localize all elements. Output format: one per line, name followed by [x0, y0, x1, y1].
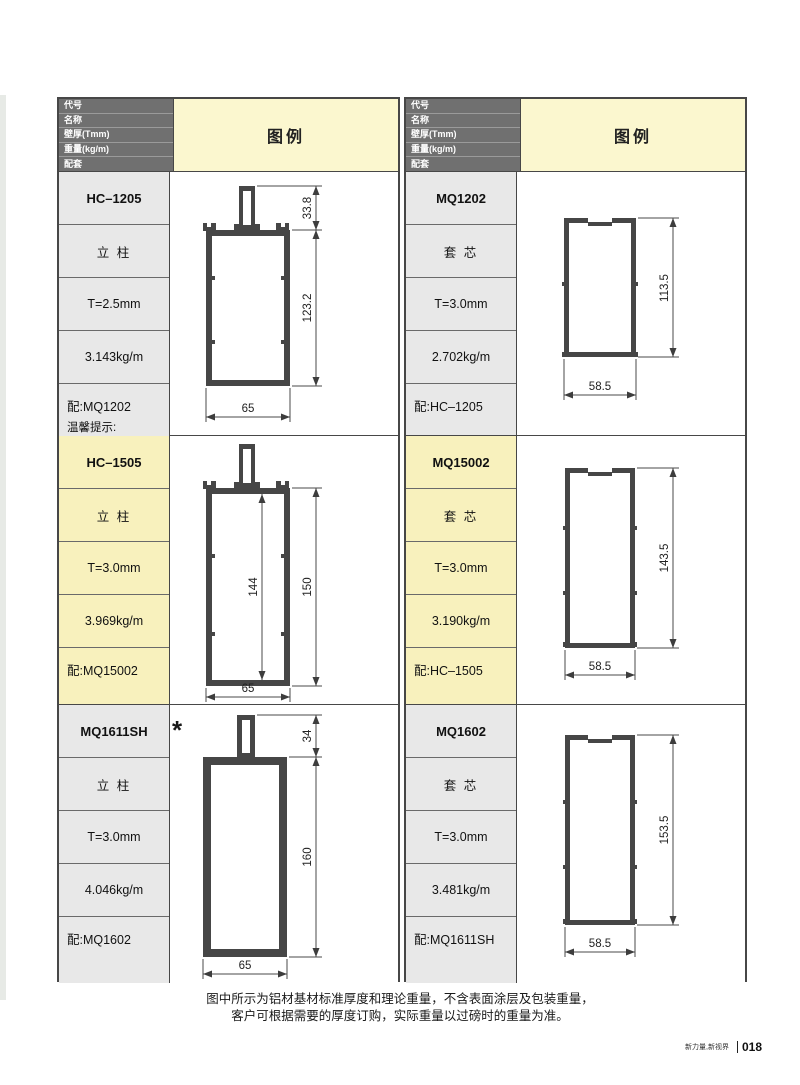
dim-label: 143.5 — [659, 544, 671, 573]
header-field-weight: 重量(kg/m) — [59, 143, 173, 158]
table-row: MQ15002 套 芯 T=3.0mm 3.190kg/m 配:HC–1505 — [406, 436, 745, 705]
footer-note: 图中所示为铝材基材标准厚度和理论重量，不含表面涂层及包装重量， 客户可根据需要的… — [0, 991, 800, 1025]
profile-code: MQ1202 — [406, 172, 516, 225]
profile-weight: 3.190kg/m — [406, 595, 516, 648]
page-footer: 新力量,新视界 018 — [685, 1040, 762, 1054]
profile-drawing-mq1611sh: 34 160 65 — [170, 705, 398, 983]
footer-note-line1: 图中所示为铝材基材标准厚度和理论重量，不含表面涂层及包装重量， — [0, 991, 800, 1008]
dim-label: 34 — [302, 729, 314, 742]
match-code: 配:MQ1602 — [67, 929, 131, 948]
header-field-weight: 重量(kg/m) — [406, 143, 520, 158]
profile-code: HC–1505 — [59, 436, 169, 489]
profile-match: 配:MQ1611SH — [406, 917, 516, 983]
dim-label: 65 — [239, 960, 252, 972]
dim-label: 58.5 — [589, 381, 611, 393]
profile-thickness: T=3.0mm — [406, 278, 516, 331]
tip-line: 温馨提示: — [67, 421, 116, 437]
profile-code: MQ15002 — [406, 436, 516, 489]
header-field-name: 名称 — [406, 114, 520, 129]
table-header: 代号 名称 壁厚(Tmm) 重量(kg/m) 配套 图例 — [406, 99, 745, 172]
dim-label: 144 — [248, 577, 260, 597]
label-column: HC–1505 立 柱 T=3.0mm 3.969kg/m 配:MQ15002 — [59, 436, 169, 704]
profile-code: MQ1611SH — [59, 705, 169, 758]
dim-label: 150 — [302, 577, 314, 596]
match-code: 配:MQ15002 — [67, 660, 138, 679]
footer-divider — [737, 1041, 738, 1053]
scan-edge-artifact — [0, 95, 6, 1000]
label-column: MQ1602 套 芯 T=3.0mm 3.481kg/m 配:MQ1611SH — [406, 705, 516, 983]
profile-drawing-hc1205: 33.8 123.2 65 — [170, 172, 398, 436]
profile-drawing-hc1505: 144 150 65 — [170, 436, 398, 705]
figure-cell: 113.5 58.5 — [516, 172, 745, 435]
header-field-labels: 代号 名称 壁厚(Tmm) 重量(kg/m) 配套 — [406, 99, 520, 171]
profile-weight: 3.969kg/m — [59, 595, 169, 648]
asterisk-mark: * — [172, 715, 182, 746]
match-code: 配:HC–1505 — [414, 660, 483, 679]
profile-code: HC–1205 — [59, 172, 169, 225]
profile-name: 立 柱 — [59, 758, 169, 811]
dim-label: 153.5 — [659, 816, 671, 845]
profile-match: 配:HC–1505 — [406, 648, 516, 704]
profile-weight: 4.046kg/m — [59, 864, 169, 917]
page-number: 018 — [742, 1040, 762, 1054]
figure-cell: 144 150 65 — [169, 436, 398, 704]
match-code: 配:HC–1205 — [414, 396, 483, 415]
profile-name: 立 柱 — [59, 225, 169, 278]
figure-cell: * 34 160 65 — [169, 705, 398, 983]
dim-label: 33.8 — [302, 197, 314, 219]
profile-thickness: T=3.0mm — [406, 542, 516, 595]
profile-thickness: T=3.0mm — [59, 811, 169, 864]
profile-match: 配:HC–1205 — [406, 384, 516, 435]
profile-table-left: 代号 名称 壁厚(Tmm) 重量(kg/m) 配套 图例 HC–1205 立 柱… — [57, 97, 400, 982]
brand-slogan: 新力量,新视界 — [685, 1042, 729, 1052]
header-field-code: 代号 — [406, 99, 520, 114]
profile-drawing-mq15002: 143.5 58.5 — [517, 436, 745, 705]
table-header: 代号 名称 壁厚(Tmm) 重量(kg/m) 配套 图例 — [59, 99, 398, 172]
label-column: MQ15002 套 芯 T=3.0mm 3.190kg/m 配:HC–1505 — [406, 436, 516, 704]
catalog-page: 代号 名称 壁厚(Tmm) 重量(kg/m) 配套 图例 HC–1205 立 柱… — [0, 0, 800, 1085]
profile-name: 套 芯 — [406, 489, 516, 542]
dim-label: 113.5 — [659, 274, 671, 302]
dim-label: 58.5 — [589, 661, 611, 673]
table-row: MQ1202 套 芯 T=3.0mm 2.702kg/m 配:HC–1205 — [406, 172, 745, 436]
header-field-thickness: 壁厚(Tmm) — [59, 128, 173, 143]
profile-code: MQ1602 — [406, 705, 516, 758]
legend-header: 图例 — [173, 99, 398, 171]
profile-match: 配:MQ15002 — [59, 648, 169, 704]
profile-thickness: T=3.0mm — [406, 811, 516, 864]
profile-name: 立 柱 — [59, 489, 169, 542]
profile-drawing-mq1202: 113.5 58.5 — [517, 172, 745, 436]
label-column: MQ1611SH 立 柱 T=3.0mm 4.046kg/m 配:MQ1602 — [59, 705, 169, 983]
table-row: MQ1602 套 芯 T=3.0mm 3.481kg/m 配:MQ1611SH — [406, 705, 745, 983]
profile-name: 套 芯 — [406, 758, 516, 811]
profile-thickness: T=3.0mm — [59, 542, 169, 595]
footer-note-line2: 客户可根据需要的厚度订购，实际重量以过磅时的重量为准。 — [0, 1008, 800, 1025]
match-code: 配:MQ1202 — [67, 396, 131, 415]
profile-thickness: T=2.5mm — [59, 278, 169, 331]
dim-label: 160 — [302, 847, 314, 866]
legend-header: 图例 — [520, 99, 745, 171]
header-field-thickness: 壁厚(Tmm) — [406, 128, 520, 143]
profile-name: 套 芯 — [406, 225, 516, 278]
profile-table-right: 代号 名称 壁厚(Tmm) 重量(kg/m) 配套 图例 MQ1202 套 芯 … — [404, 97, 747, 982]
profile-match: 配:MQ1602 — [59, 917, 169, 983]
label-column: MQ1202 套 芯 T=3.0mm 2.702kg/m 配:HC–1205 — [406, 172, 516, 435]
header-field-name: 名称 — [59, 114, 173, 129]
profile-weight: 2.702kg/m — [406, 331, 516, 384]
figure-cell: 33.8 123.2 65 — [169, 172, 398, 435]
label-column: HC–1205 立 柱 T=2.5mm 3.143kg/m 配:MQ1202 温… — [59, 172, 169, 435]
profile-weight: 3.481kg/m — [406, 864, 516, 917]
dim-label: 123.2 — [302, 294, 314, 323]
dim-label: 65 — [242, 403, 255, 415]
figure-cell: 143.5 58.5 — [516, 436, 745, 704]
profile-drawing-mq1602: 153.5 58.5 — [517, 705, 745, 983]
table-row: HC–1505 立 柱 T=3.0mm 3.969kg/m 配:MQ15002 — [59, 436, 398, 705]
table-row: HC–1205 立 柱 T=2.5mm 3.143kg/m 配:MQ1202 温… — [59, 172, 398, 436]
dim-label: 65 — [242, 683, 255, 695]
figure-cell: 153.5 58.5 — [516, 705, 745, 983]
profile-weight: 3.143kg/m — [59, 331, 169, 384]
dim-label: 58.5 — [589, 938, 611, 950]
match-code: 配:MQ1611SH — [414, 929, 494, 948]
header-field-match: 配套 — [59, 157, 173, 171]
header-field-labels: 代号 名称 壁厚(Tmm) 重量(kg/m) 配套 — [59, 99, 173, 171]
header-field-code: 代号 — [59, 99, 173, 114]
header-field-match: 配套 — [406, 157, 520, 171]
table-row: MQ1611SH 立 柱 T=3.0mm 4.046kg/m 配:MQ1602 … — [59, 705, 398, 983]
